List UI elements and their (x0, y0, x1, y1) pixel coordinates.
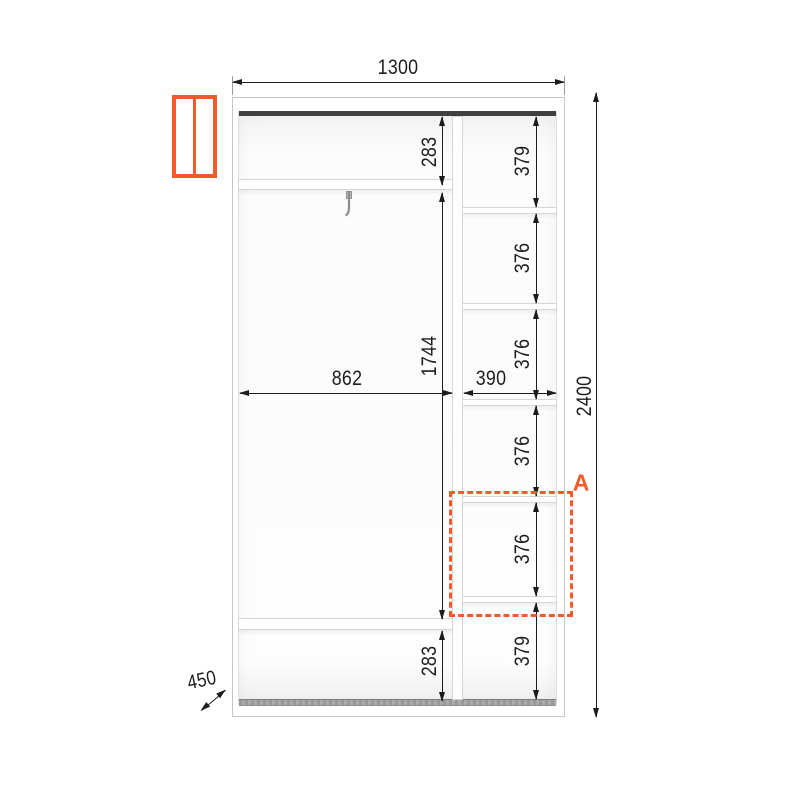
dim-label-overall-width: 1300 (378, 56, 419, 80)
dim-line-cell-3 (536, 310, 537, 399)
depth-arrow (201, 690, 225, 711)
shelf-right-2 (462, 303, 557, 310)
dim-line-left-middle-gap (442, 193, 443, 619)
dim-line-cell-6 (536, 603, 537, 699)
shelf-right-1 (462, 207, 557, 214)
shelf-left-top (238, 179, 453, 190)
dim-line-right-width (464, 393, 556, 394)
shelf-left-bottom (238, 618, 453, 630)
dim-label-overall-height: 2400 (573, 376, 597, 417)
shelf-right-3 (462, 399, 557, 406)
two-door-wardrobe-icon (172, 95, 217, 178)
door-divider-line (193, 99, 196, 174)
dim-label-depth: 450 (185, 667, 218, 696)
dim-label-left-top-gap: 283 (418, 137, 442, 168)
dim-label-cell-6: 379 (511, 636, 535, 667)
dim-label-left-bottom-gap: 283 (418, 646, 442, 677)
top-track (239, 111, 556, 116)
hanger-rod-bracket-icon (343, 190, 355, 222)
dim-line-cell-2 (536, 214, 537, 303)
dim-line-cell-4 (536, 406, 537, 496)
dim-line-cell-1 (536, 117, 537, 207)
dim-line-overall-width (233, 82, 564, 83)
dim-label-cell-3: 376 (511, 339, 535, 370)
dim-label-left-middle-gap: 1744 (418, 336, 442, 377)
dim-line-left-bottom-gap (442, 631, 443, 701)
dim-label-cell-1: 379 (511, 146, 535, 177)
dim-line-left-top-gap (442, 117, 443, 185)
region-a-outline (449, 491, 573, 617)
dim-label-cell-2: 376 (511, 243, 535, 274)
bottom-track (239, 699, 556, 706)
region-a-label: A (573, 470, 590, 497)
dim-label-left-width: 862 (332, 367, 363, 391)
wardrobe-dimension-diagram: 1300 2400 283 1744 283 862 390 379 376 3… (0, 0, 800, 800)
dim-label-cell-4: 376 (511, 436, 535, 467)
dim-line-left-width (240, 393, 452, 394)
dim-label-right-width: 390 (476, 367, 507, 391)
